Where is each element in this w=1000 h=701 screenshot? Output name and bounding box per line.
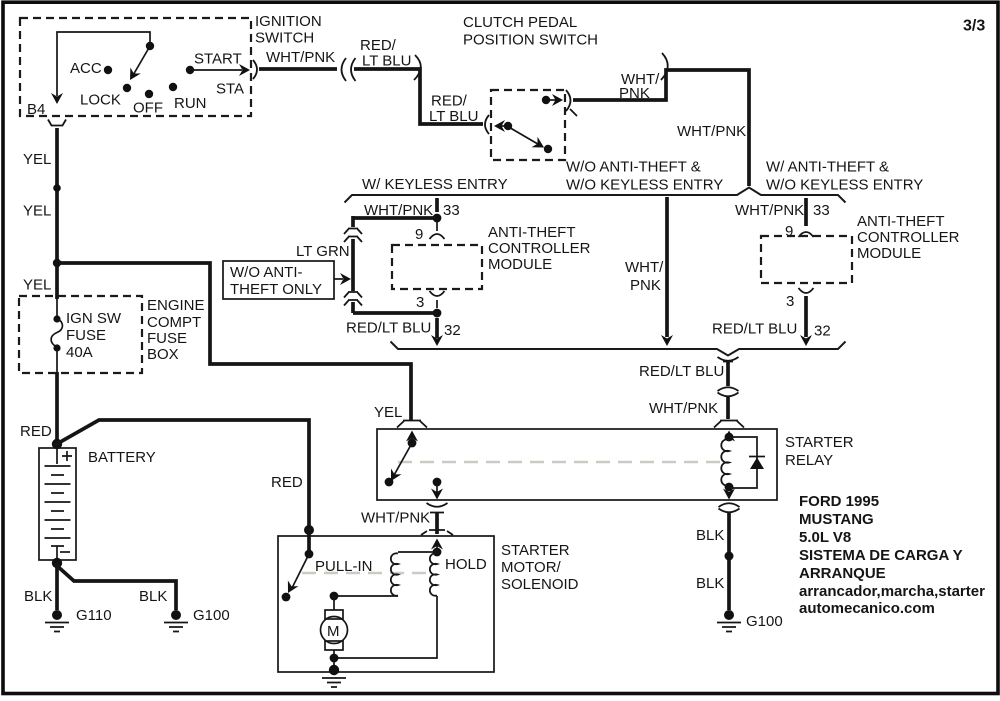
svg-text:STA: STA bbox=[216, 81, 244, 98]
svg-text:COMPT: COMPT bbox=[147, 314, 201, 331]
svg-text:PULL-IN: PULL-IN bbox=[315, 558, 373, 575]
svg-text:BLK: BLK bbox=[696, 527, 724, 544]
svg-text:40A: 40A bbox=[66, 344, 93, 361]
svg-text:W/O ANTI-: W/O ANTI- bbox=[230, 264, 303, 281]
svg-text:ANTI-THEFT: ANTI-THEFT bbox=[488, 224, 576, 241]
svg-text:automecanico.com: automecanico.com bbox=[799, 600, 935, 617]
svg-text:ARRANQUE: ARRANQUE bbox=[799, 565, 886, 582]
svg-text:ANTI-THEFT: ANTI-THEFT bbox=[857, 213, 945, 230]
svg-text:STARTER: STARTER bbox=[785, 434, 854, 451]
svg-text:FUSE: FUSE bbox=[147, 330, 187, 347]
svg-text:BATTERY: BATTERY bbox=[88, 449, 156, 466]
svg-text:BLK: BLK bbox=[139, 588, 167, 605]
svg-text:WHT/PNK: WHT/PNK bbox=[361, 510, 430, 527]
svg-text:RELAY: RELAY bbox=[785, 452, 833, 469]
svg-text:32: 32 bbox=[814, 323, 831, 340]
svg-text:PNK: PNK bbox=[619, 85, 650, 102]
svg-text:POSITION SWITCH: POSITION SWITCH bbox=[463, 32, 598, 49]
svg-text:M: M bbox=[327, 623, 340, 640]
svg-text:FORD 1995: FORD 1995 bbox=[799, 493, 879, 510]
svg-text:arrancador,marcha,starter: arrancador,marcha,starter bbox=[799, 583, 985, 600]
svg-text:IGNITION: IGNITION bbox=[255, 13, 322, 30]
svg-text:THEFT ONLY: THEFT ONLY bbox=[230, 281, 322, 298]
svg-text:32: 32 bbox=[444, 322, 461, 339]
svg-text:G100: G100 bbox=[193, 607, 230, 624]
svg-text:RED/: RED/ bbox=[431, 93, 468, 110]
svg-text:LT BLU: LT BLU bbox=[429, 108, 478, 125]
svg-text:IGN SW: IGN SW bbox=[66, 310, 122, 327]
svg-text:MODULE: MODULE bbox=[488, 256, 552, 273]
svg-text:START: START bbox=[194, 51, 242, 68]
svg-text:YEL: YEL bbox=[23, 277, 51, 294]
svg-text:3/3: 3/3 bbox=[963, 18, 985, 35]
svg-text:BOX: BOX bbox=[147, 346, 179, 363]
svg-text:MODULE: MODULE bbox=[857, 245, 921, 262]
svg-text:WHT/PNK: WHT/PNK bbox=[735, 202, 804, 219]
svg-text:W/O KEYLESS ENTRY: W/O KEYLESS ENTRY bbox=[566, 177, 723, 194]
svg-text:LT GRN: LT GRN bbox=[296, 243, 350, 260]
svg-text:9: 9 bbox=[785, 223, 793, 240]
svg-text:W/ KEYLESS ENTRY: W/ KEYLESS ENTRY bbox=[362, 176, 508, 193]
svg-text:33: 33 bbox=[813, 202, 830, 219]
svg-text:9: 9 bbox=[415, 226, 423, 243]
svg-text:G100: G100 bbox=[746, 613, 783, 630]
svg-text:MUSTANG: MUSTANG bbox=[799, 511, 874, 528]
svg-text:CONTROLLER: CONTROLLER bbox=[857, 229, 960, 246]
svg-text:5.0L V8: 5.0L V8 bbox=[799, 529, 851, 546]
svg-text:YEL: YEL bbox=[23, 151, 51, 168]
svg-text:BLK: BLK bbox=[696, 575, 724, 592]
svg-text:STARTER: STARTER bbox=[501, 542, 570, 559]
svg-text:PNK: PNK bbox=[630, 277, 661, 294]
svg-text:HOLD: HOLD bbox=[445, 556, 487, 573]
svg-text:OFF: OFF bbox=[133, 100, 163, 117]
svg-text:G110: G110 bbox=[76, 607, 112, 624]
svg-text:YEL: YEL bbox=[23, 203, 51, 220]
svg-text:W/ ANTI-THEFT &: W/ ANTI-THEFT & bbox=[766, 159, 889, 176]
svg-text:RED/LT BLU: RED/LT BLU bbox=[639, 363, 724, 380]
svg-text:SWITCH: SWITCH bbox=[255, 30, 314, 47]
svg-text:33: 33 bbox=[443, 202, 460, 219]
svg-text:CONTROLLER: CONTROLLER bbox=[488, 240, 591, 257]
svg-text:ACC: ACC bbox=[70, 60, 102, 77]
svg-text:3: 3 bbox=[786, 293, 794, 310]
svg-text:FUSE: FUSE bbox=[66, 327, 106, 344]
svg-text:YEL: YEL bbox=[374, 404, 402, 421]
svg-text:MOTOR/: MOTOR/ bbox=[501, 559, 562, 576]
svg-text:WHT/PNK: WHT/PNK bbox=[649, 400, 718, 417]
svg-text:RED: RED bbox=[271, 474, 303, 491]
svg-text:BLK: BLK bbox=[24, 588, 52, 605]
svg-text:WHT/PNK: WHT/PNK bbox=[677, 123, 746, 140]
svg-text:RED/LT BLU: RED/LT BLU bbox=[712, 321, 797, 338]
svg-text:W/O KEYLESS ENTRY: W/O KEYLESS ENTRY bbox=[766, 177, 923, 194]
svg-text:B4: B4 bbox=[27, 101, 45, 118]
svg-text:RED/: RED/ bbox=[360, 37, 397, 54]
svg-text:LT BLU: LT BLU bbox=[362, 53, 411, 70]
svg-text:WHT/: WHT/ bbox=[625, 259, 664, 276]
svg-text:SISTEMA DE CARGA Y: SISTEMA DE CARGA Y bbox=[799, 547, 963, 564]
svg-text:CLUTCH PEDAL: CLUTCH PEDAL bbox=[463, 14, 577, 31]
svg-text:RUN: RUN bbox=[174, 95, 207, 112]
svg-text:3: 3 bbox=[416, 294, 424, 311]
svg-text:ENGINE: ENGINE bbox=[147, 297, 205, 314]
svg-text:WHT/PNK: WHT/PNK bbox=[266, 49, 335, 66]
svg-text:LOCK: LOCK bbox=[80, 92, 121, 109]
svg-text:RED/LT BLU: RED/LT BLU bbox=[346, 320, 431, 337]
svg-text:RED: RED bbox=[20, 423, 52, 440]
svg-text:W/O ANTI-THEFT &: W/O ANTI-THEFT & bbox=[566, 159, 701, 176]
svg-text:SOLENOID: SOLENOID bbox=[501, 576, 579, 593]
